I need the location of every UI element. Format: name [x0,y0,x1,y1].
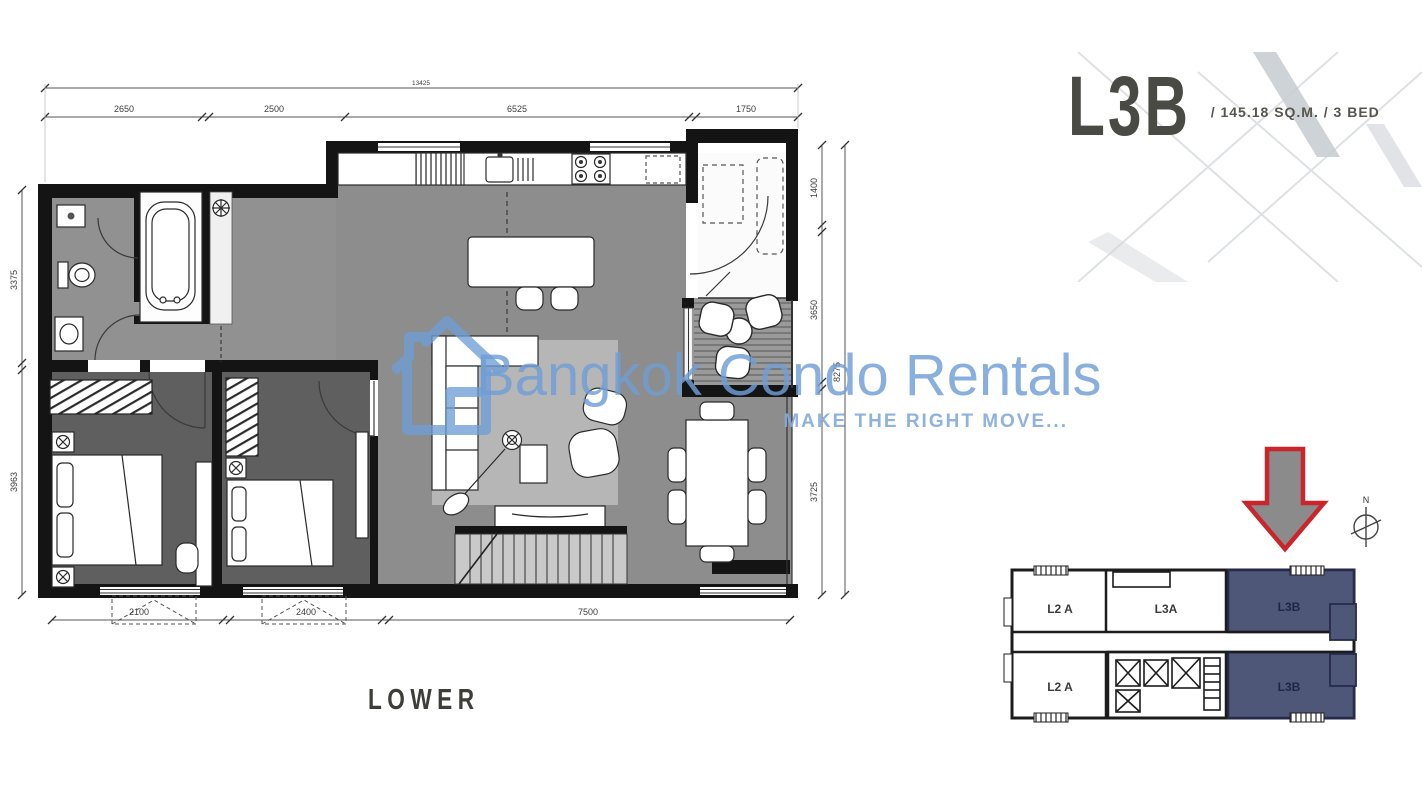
dim-top-3: 6525 [507,104,527,114]
kitchen-sink [486,157,513,182]
floor-plan-page: 13425 2650 2500 6525 1750 3375 3963 1400… [0,0,1422,800]
dim-top-total: 13425 [412,80,430,87]
keyplan-label-l3b-top: L3B [1278,600,1301,614]
storage-room-floor [698,153,786,298]
compass-north-label: N [1363,495,1370,505]
compass: N [1351,495,1381,547]
dim-bottom-2: 2400 [296,607,316,617]
level-label: LOWER [368,684,479,717]
stool [176,543,198,573]
brand-watermark: Bangkok Condo Rentals MAKE THE RIGHT MOV… [392,298,1068,456]
keyplan-label-l3b-bottom: L3B [1278,680,1301,694]
toilet [58,262,68,288]
staircase [455,526,627,584]
dim-bottom-3: 7500 [578,607,598,617]
keyplan-corridor [1036,634,1280,650]
keyplan-label-l2a-top: L2 A [1047,602,1073,616]
title-block: L3B/ 145.18 SQ.M. / 3 BED [1048,52,1422,262]
keyplan-label-l3a: L3A [1155,602,1178,616]
desk-2 [356,432,368,538]
dim-left-2: 3963 [9,472,19,492]
dining-chair [700,546,734,562]
dining-chair [668,490,686,524]
unit-subtitle: / 145.18 SQ.M. / 3 BED [1211,104,1380,120]
dim-left-1: 3375 [9,270,19,290]
brand-name: Bangkok Condo Rentals [476,342,1068,409]
dim-right-1: 1400 [809,178,819,198]
dim-right-3: 3725 [809,482,819,502]
watermark-text: Bangkok Condo Rentals MAKE THE RIGHT MOV… [476,342,1068,433]
unit-title: L3B [1068,64,1191,148]
desk [196,462,212,586]
kitchen-island [468,237,594,287]
dim-top-4: 1750 [736,104,756,114]
keyplan-label-l2a-bottom: L2 A [1047,680,1073,694]
wardrobe-1 [50,380,152,414]
key-plan: L2 A L3A L3B L2 A L3B [1004,566,1356,722]
brand-tagline: MAKE THE RIGHT MOVE... [476,411,1068,433]
dining-chair [748,490,766,524]
kitchen-cabinet [416,153,464,185]
dim-top-1: 2650 [114,104,134,114]
dim-top-2: 2500 [264,104,284,114]
wardrobe-2 [226,378,258,456]
location-arrow [1246,449,1324,549]
dim-bottom-1: 2100 [129,607,149,617]
